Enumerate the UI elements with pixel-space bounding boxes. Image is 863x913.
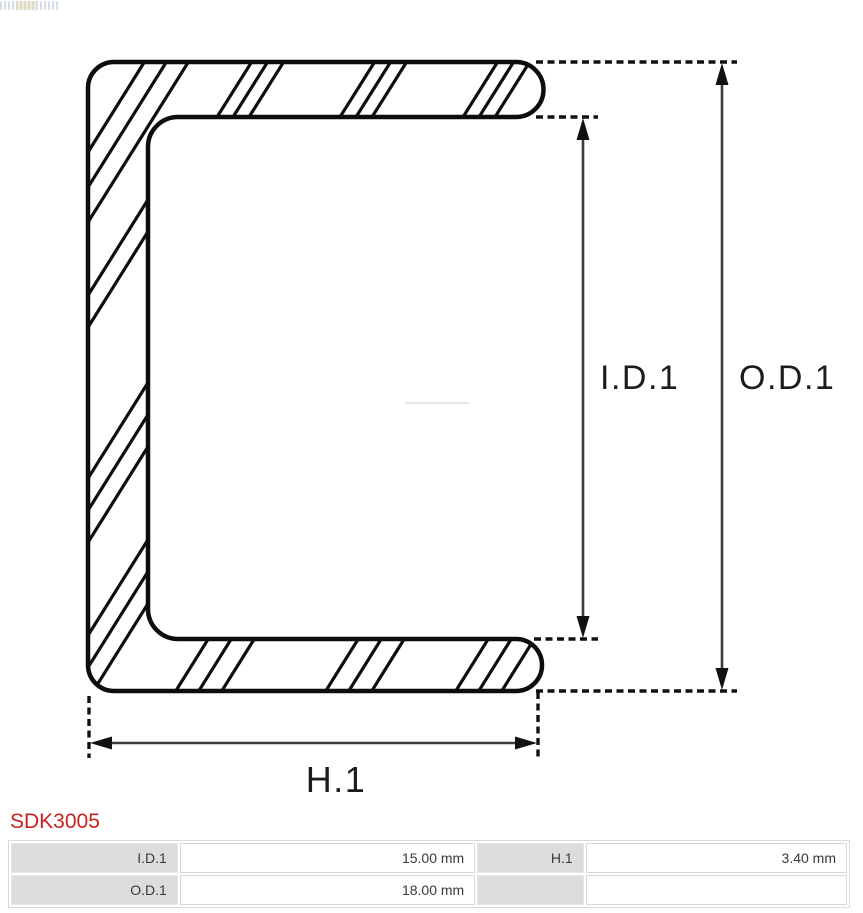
watermark-line (405, 402, 469, 404)
id1-label: I.D.1 (600, 359, 679, 397)
h1-arrowhead-right (515, 737, 537, 750)
id1-arrowhead-up (577, 118, 590, 140)
spec-label-od1: O.D.1 (11, 875, 178, 905)
spec-value-empty (586, 875, 847, 905)
spec-value-od1: 18.00 mm (180, 875, 475, 905)
od1-arrowhead-up (716, 63, 729, 85)
profile-outline (88, 62, 543, 691)
part-code: SDK3005 (10, 810, 100, 834)
spec-value-id1: 15.00 mm (180, 843, 475, 873)
od1-dimension-line (716, 63, 729, 690)
h1-dimension-line (90, 737, 537, 750)
h1-arrowhead-left (90, 737, 112, 750)
spec-value-h1: 3.40 mm (586, 843, 847, 873)
table-row: O.D.1 18.00 mm (11, 875, 847, 905)
spec-label-h1: H.1 (477, 843, 584, 873)
cross-section-diagram: I.D.1 O.D.1 H.1 (0, 0, 863, 806)
id1-dimension-line (577, 118, 590, 638)
h1-label: H.1 (306, 759, 367, 800)
od1-arrowhead-down (716, 668, 729, 690)
spec-label-id1: I.D.1 (11, 843, 178, 873)
od1-label: O.D.1 (739, 359, 835, 397)
spec-table: I.D.1 15.00 mm H.1 3.40 mm O.D.1 18.00 m… (8, 840, 850, 908)
table-row: I.D.1 15.00 mm H.1 3.40 mm (11, 843, 847, 873)
page-root: I.D.1 O.D.1 H.1 SDK3005 I.D.1 15.00 mm H… (0, 0, 863, 913)
spec-label-empty (477, 875, 584, 905)
id1-arrowhead-down (577, 616, 590, 638)
